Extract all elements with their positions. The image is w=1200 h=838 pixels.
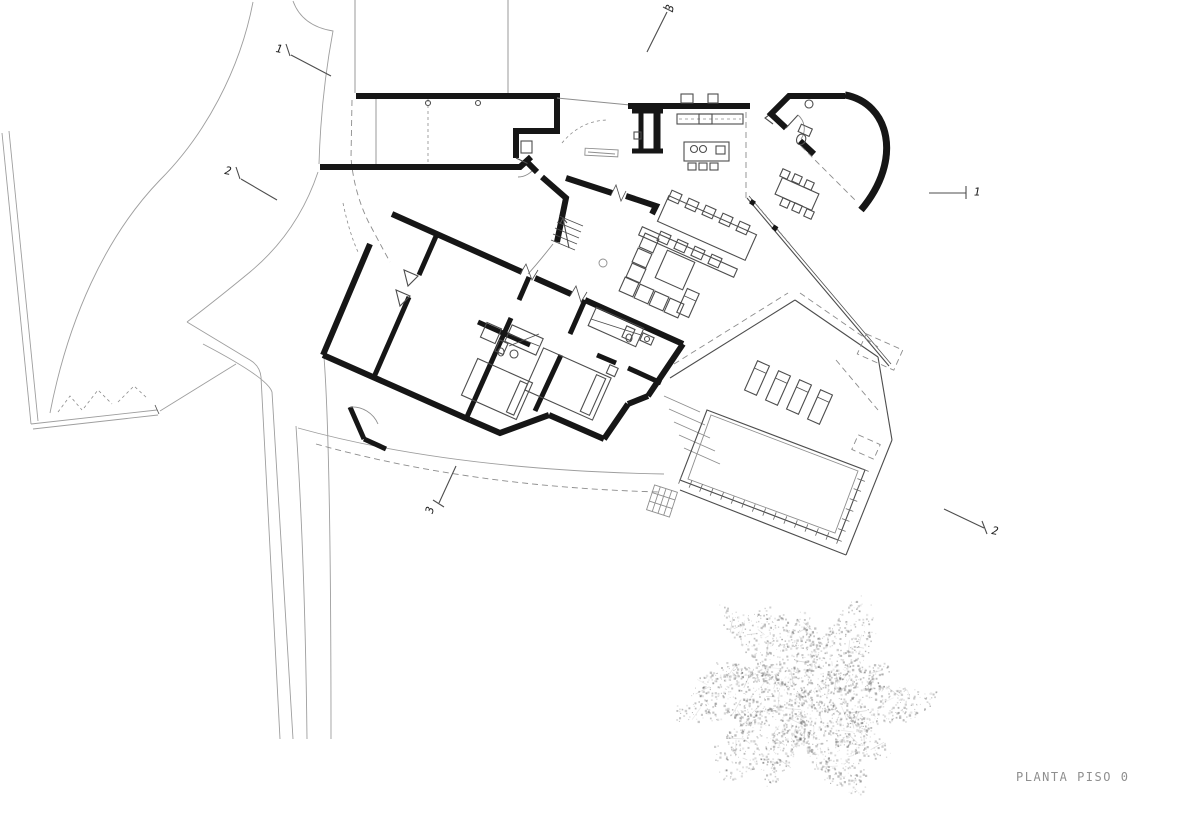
kitchen-island	[684, 142, 729, 161]
kitchen	[628, 94, 773, 200]
exterior-steps	[664, 396, 720, 464]
section-marker-label: 3	[423, 505, 438, 516]
chair	[804, 180, 815, 191]
chair	[780, 198, 791, 209]
deck-edge	[795, 300, 878, 357]
bath-partition	[628, 368, 661, 383]
section-marker-label: 2	[224, 164, 233, 178]
nightstand	[606, 365, 618, 377]
section-marker-label: 2	[991, 524, 1000, 538]
skylight	[708, 94, 718, 103]
cooktop-burner	[700, 146, 707, 153]
partition	[374, 297, 409, 377]
wall-break-symbol	[570, 286, 587, 302]
sun-loungers	[745, 361, 833, 425]
section-marker-1-right: 1	[929, 186, 980, 200]
roof-outline-dashed	[852, 435, 880, 459]
bath-partition	[597, 355, 616, 363]
porch-wall	[350, 407, 364, 439]
site-context	[2, 2, 664, 739]
pool-edge-ticks	[679, 469, 869, 544]
pool-outline	[680, 410, 865, 540]
section-marker-label: 3	[663, 3, 678, 14]
chair	[702, 205, 716, 219]
toilet	[622, 326, 635, 341]
section-markers: 3 1 2 1 2 3	[224, 3, 1000, 538]
roof-outline-dashed	[857, 334, 902, 370]
cabinet	[521, 141, 532, 153]
floor-plan-drawing: 3 1 2 1 2 3 PLANTA PISO 0	[0, 0, 1200, 838]
chair	[780, 169, 791, 180]
stair-wall	[542, 177, 566, 242]
sink	[510, 350, 518, 358]
partition	[519, 277, 529, 300]
island-sink	[716, 146, 725, 154]
walkway	[187, 322, 331, 739]
carport	[320, 96, 560, 167]
chair	[668, 190, 682, 204]
partition	[570, 300, 585, 334]
chair	[804, 209, 815, 220]
vanity	[640, 333, 654, 345]
drawing-caption: PLANTA PISO 0	[1016, 770, 1129, 784]
curved-wall	[845, 95, 887, 210]
door-leaf	[404, 270, 418, 286]
pillow	[506, 381, 527, 415]
deck-edge	[670, 300, 795, 378]
terrain-contour-dashed	[316, 444, 660, 492]
chair	[685, 198, 699, 212]
bedroom-wing	[323, 214, 683, 449]
tree	[676, 596, 937, 796]
stool	[710, 163, 718, 170]
section-marker-3-top: 3	[647, 3, 677, 52]
section-marker-3-bottom-left: 3	[423, 466, 456, 516]
section-marker-2-left: 2	[224, 164, 277, 200]
stool	[688, 163, 696, 170]
porch-wall	[364, 439, 386, 449]
driveway	[293, 0, 508, 262]
section-marker-2-bottom-right: 2	[944, 509, 1000, 538]
coffee-table	[655, 250, 695, 290]
cooktop-burner	[691, 146, 698, 153]
sink	[805, 100, 813, 108]
glass-facade	[747, 198, 889, 366]
wardrobe	[505, 325, 543, 355]
section-marker-label: 1	[275, 42, 284, 56]
section-marker-1-top-left: 1	[275, 42, 331, 76]
pool-grate	[647, 485, 678, 517]
floor-drain	[599, 259, 607, 267]
chair	[719, 213, 733, 227]
entry-hall	[516, 98, 656, 274]
car-path-dashed	[351, 100, 390, 262]
sink	[645, 337, 650, 342]
skylight	[681, 94, 693, 103]
vestibule-wall	[516, 96, 557, 158]
chair	[736, 221, 750, 235]
column	[749, 199, 756, 206]
wall-break-symbol	[611, 185, 626, 201]
hinge-symbol	[476, 101, 481, 106]
section-marker-label: 1	[974, 186, 981, 199]
door-leaf	[786, 115, 798, 128]
deck-edge	[680, 490, 846, 555]
column	[772, 225, 779, 232]
partition	[419, 234, 437, 275]
floor-plan-sheet: 3 1 2 1 2 3 PLANTA PISO 0	[0, 0, 1200, 838]
deck-edge	[878, 357, 892, 440]
wc-room	[771, 95, 887, 210]
partition	[535, 355, 561, 411]
pillow	[580, 375, 605, 416]
chair	[691, 246, 705, 260]
sofa	[619, 233, 684, 318]
stool	[699, 163, 707, 170]
